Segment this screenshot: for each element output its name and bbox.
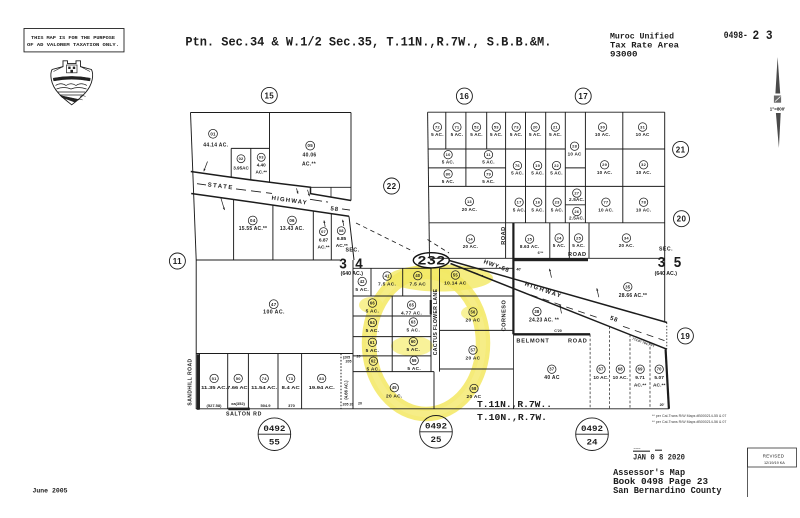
- svg-text:(640 AC.): (640 AC.): [341, 271, 364, 277]
- svg-text:5 AC.: 5 AC.: [553, 243, 566, 248]
- svg-text:BELMONT: BELMONT: [516, 338, 549, 344]
- svg-text:T.10N.,R.7W.: T.10N.,R.7W.: [477, 413, 547, 423]
- svg-text:CACTUS FLOWER LANE: CACTUS FLOWER LANE: [433, 289, 439, 356]
- svg-text:0498-: 0498-: [724, 30, 748, 41]
- svg-text:2.5AC.: 2.5AC.: [569, 216, 585, 221]
- svg-text:07: 07: [321, 229, 326, 234]
- svg-text:47: 47: [271, 302, 277, 307]
- svg-text:26: 26: [574, 209, 579, 214]
- svg-text:THIS MAP IS FOR THE PURPOSE: THIS MAP IS FOR THE PURPOSE: [31, 35, 115, 41]
- svg-text:AC.**: AC.**: [255, 169, 267, 174]
- svg-text:41: 41: [385, 273, 390, 278]
- svg-text:SEC.: SEC.: [659, 246, 673, 252]
- svg-text:3.95AC: 3.95AC: [233, 166, 249, 171]
- svg-text:10 AC.: 10 AC.: [636, 170, 651, 175]
- svg-text:370: 370: [288, 403, 295, 408]
- svg-text:June 2005: June 2005: [33, 487, 68, 494]
- svg-text:(527.58): (527.58): [207, 403, 223, 408]
- svg-text:10 AC.: 10 AC.: [595, 132, 610, 137]
- svg-text:2 3: 2 3: [753, 29, 773, 43]
- svg-text:205: 205: [346, 360, 352, 364]
- svg-text:2.5AC.: 2.5AC.: [569, 197, 585, 202]
- svg-text:71: 71: [454, 124, 459, 129]
- svg-text:40': 40': [516, 268, 521, 272]
- svg-text:37: 37: [549, 367, 555, 372]
- svg-text:Ptn. Sec.34 & W.1/2 Sec.35, T.: Ptn. Sec.34 & W.1/2 Sec.35, T.11N.,R.7W.…: [185, 35, 551, 50]
- svg-text:10 AC.: 10 AC.: [597, 170, 612, 175]
- svg-text:5 AC.: 5 AC.: [511, 171, 524, 176]
- svg-text:10 AC: 10 AC: [568, 151, 582, 156]
- svg-text:31: 31: [640, 124, 645, 129]
- svg-text:San Bernardino County: San Bernardino County: [613, 486, 722, 496]
- svg-text:70: 70: [657, 367, 663, 372]
- svg-text:11: 11: [173, 257, 182, 266]
- svg-text:61: 61: [370, 340, 375, 345]
- svg-text:T.11N.,R.7W..: T.11N.,R.7W..: [477, 400, 552, 410]
- svg-text:5 AC.: 5 AC.: [366, 328, 380, 334]
- svg-text:~~~: ~~~: [633, 446, 641, 451]
- svg-text:20': 20': [660, 403, 665, 407]
- svg-text:66: 66: [370, 300, 375, 305]
- svg-text:40.06: 40.06: [302, 153, 316, 159]
- svg-text:15.55 AC.**: 15.55 AC.**: [239, 226, 267, 232]
- svg-text:ROAD: ROAD: [568, 338, 588, 344]
- svg-text:59: 59: [412, 358, 417, 363]
- svg-text:AC.**: AC.**: [653, 382, 666, 388]
- svg-text:22: 22: [387, 182, 397, 191]
- svg-text:SALTON RD: SALTON RD: [226, 412, 262, 418]
- svg-text:24: 24: [557, 235, 562, 240]
- svg-text:1"=800': 1"=800': [770, 107, 785, 112]
- svg-text:5 AC.: 5 AC.: [431, 132, 444, 137]
- svg-text:6.87: 6.87: [319, 238, 329, 244]
- svg-text:19.94 AC.: 19.94 AC.: [309, 385, 335, 390]
- svg-text:32: 32: [641, 162, 646, 167]
- svg-text:7.66 AC.: 7.66 AC.: [227, 385, 249, 390]
- svg-text:13: 13: [467, 199, 472, 204]
- svg-text:13.43 AC.: 13.43 AC.: [280, 226, 305, 232]
- svg-text:(640 AC.): (640 AC.): [655, 271, 678, 277]
- svg-text:20 AC.: 20 AC.: [463, 244, 478, 249]
- svg-text:xa(352): xa(352): [231, 401, 245, 406]
- svg-text:25: 25: [576, 235, 581, 240]
- svg-text:52: 52: [474, 124, 479, 129]
- svg-text:55: 55: [269, 439, 280, 448]
- svg-text:01: 01: [210, 131, 216, 136]
- svg-text:5 AC.: 5 AC.: [549, 132, 562, 137]
- svg-text:55: 55: [453, 272, 458, 277]
- svg-text:JAN 0 8 2020: JAN 0 8 2020: [633, 452, 685, 462]
- svg-text:5 AC.: 5 AC.: [490, 132, 503, 137]
- svg-text:0492: 0492: [425, 423, 447, 432]
- svg-text:08: 08: [339, 228, 344, 233]
- svg-text:OF AD VALOREM TAXATION ONLY.: OF AD VALOREM TAXATION ONLY.: [27, 42, 119, 48]
- svg-text:25: 25: [431, 436, 442, 445]
- svg-text:67: 67: [598, 367, 604, 372]
- svg-text:56: 56: [471, 309, 476, 314]
- svg-text:74: 74: [262, 376, 267, 381]
- svg-text:** per Cal-Trans R/W Maps #B00: ** per Cal-Trans R/W Maps #B000214-55 & …: [652, 414, 726, 418]
- svg-text:21: 21: [553, 124, 558, 129]
- svg-text:60: 60: [411, 339, 416, 344]
- svg-text:78: 78: [641, 200, 646, 205]
- svg-text:5 AC.: 5 AC.: [550, 171, 563, 176]
- svg-text:7.5 AC: 7.5 AC: [410, 282, 427, 288]
- svg-text:40: 40: [415, 273, 420, 278]
- svg-text:SEC.: SEC.: [345, 247, 359, 253]
- svg-text:79: 79: [486, 171, 491, 176]
- svg-text:0492: 0492: [581, 425, 603, 434]
- svg-text:504.9: 504.9: [260, 403, 271, 408]
- svg-text:80: 80: [446, 171, 451, 176]
- svg-text:4.77 AC.: 4.77 AC.: [401, 311, 422, 317]
- svg-text:57: 57: [471, 347, 476, 352]
- svg-text:C'20: C'20: [554, 329, 561, 333]
- svg-text:5.07: 5.07: [654, 375, 664, 381]
- svg-text:69: 69: [638, 367, 644, 372]
- svg-text:45: 45: [392, 385, 397, 390]
- svg-text:10 AC.: 10 AC.: [613, 375, 628, 381]
- svg-text:(4.66 AC.): (4.66 AC.): [344, 380, 349, 400]
- svg-text:20 AC: 20 AC: [466, 356, 481, 362]
- svg-text:16: 16: [535, 200, 540, 205]
- svg-text:20: 20: [357, 355, 361, 359]
- svg-text:5 AC.: 5 AC.: [442, 160, 455, 165]
- svg-text:ROAD: ROAD: [568, 252, 586, 258]
- svg-text:05: 05: [308, 143, 314, 148]
- svg-text:ROAD: ROAD: [501, 226, 507, 244]
- svg-text:4.40: 4.40: [257, 163, 266, 168]
- svg-text:53: 53: [494, 124, 499, 129]
- svg-text:5 AC.: 5 AC.: [355, 287, 369, 293]
- svg-text:5 AC.: 5 AC.: [366, 348, 380, 354]
- svg-text:5 AC.: 5 AC.: [407, 328, 421, 334]
- svg-text:50: 50: [236, 376, 241, 381]
- svg-text:5 AC.: 5 AC.: [529, 132, 542, 137]
- svg-text:63: 63: [411, 319, 416, 324]
- svg-text:SANDHILL ROAD: SANDHILL ROAD: [188, 358, 194, 405]
- svg-text:5 AC.: 5 AC.: [551, 207, 564, 212]
- svg-text:3 5: 3 5: [658, 255, 682, 272]
- svg-text:12/19/19 KA: 12/19/19 KA: [764, 461, 785, 465]
- svg-text:5 AC.: 5 AC.: [442, 179, 455, 184]
- svg-text:44.14 AC.: 44.14 AC.: [203, 143, 228, 149]
- svg-text:5 AC.: 5 AC.: [513, 207, 526, 212]
- svg-text:205 20: 205 20: [343, 403, 354, 407]
- svg-text:22: 22: [554, 163, 559, 168]
- svg-text:5 AC.: 5 AC.: [407, 347, 421, 353]
- svg-text:773.87 784.7 FT: 773.87 784.7 FT: [632, 337, 655, 349]
- svg-text:20 AC: 20 AC: [466, 318, 481, 324]
- svg-text:8.63 AC.: 8.63 AC.: [520, 244, 540, 249]
- svg-text:0492: 0492: [263, 425, 285, 434]
- svg-text:30: 30: [600, 124, 605, 129]
- svg-text:34: 34: [624, 235, 629, 240]
- svg-text:23: 23: [555, 200, 560, 205]
- svg-text:19: 19: [681, 332, 691, 341]
- svg-text:5 AC.: 5 AC.: [531, 207, 544, 212]
- svg-text:5 AC.: 5 AC.: [407, 366, 421, 372]
- svg-text:17: 17: [578, 92, 588, 101]
- svg-text:10 AC.: 10 AC.: [636, 207, 651, 212]
- svg-text:STATE: STATE: [207, 182, 234, 191]
- svg-text:10 AC.: 10 AC.: [598, 207, 613, 212]
- svg-text:10 AC.: 10 AC.: [593, 375, 608, 381]
- svg-text:5 AC.: 5 AC.: [510, 132, 523, 137]
- svg-text:68: 68: [618, 367, 624, 372]
- svg-text:20: 20: [677, 215, 687, 224]
- svg-text:16: 16: [460, 92, 470, 101]
- svg-text:58: 58: [609, 316, 619, 324]
- svg-text:02: 02: [239, 156, 244, 161]
- svg-text:AC.**: AC.**: [302, 162, 316, 168]
- svg-text:10: 10: [446, 152, 451, 157]
- svg-text:29: 29: [602, 162, 607, 167]
- svg-text:65: 65: [409, 302, 414, 307]
- svg-text:232: 232: [417, 255, 445, 269]
- svg-text:100 AC.: 100 AC.: [263, 310, 285, 316]
- svg-text:51: 51: [212, 376, 217, 381]
- svg-text:9.71: 9.71: [635, 375, 645, 381]
- svg-text:20: 20: [533, 124, 538, 129]
- svg-text:20 AC: 20 AC: [467, 394, 482, 400]
- svg-text:6'**: 6'**: [538, 251, 544, 255]
- svg-text:AC.**: AC.**: [318, 245, 330, 251]
- svg-text:19: 19: [535, 163, 540, 168]
- svg-text:CORNESO: CORNESO: [502, 299, 508, 331]
- svg-text:5 AC.: 5 AC.: [572, 243, 585, 248]
- svg-text:11.35 AC.: 11.35 AC.: [201, 385, 227, 390]
- svg-text:5 AC.: 5 AC.: [482, 179, 495, 184]
- svg-text:5 AC.: 5 AC.: [531, 171, 544, 176]
- svg-text:10 AC: 10 AC: [636, 132, 650, 137]
- svg-text:38: 38: [534, 309, 540, 314]
- svg-text:REVISED: REVISED: [763, 453, 784, 458]
- svg-text:15: 15: [264, 91, 274, 100]
- svg-text:20 AC.: 20 AC.: [619, 243, 634, 248]
- svg-text:93000: 93000: [610, 49, 638, 59]
- svg-text:06: 06: [289, 218, 295, 223]
- svg-text:15: 15: [527, 236, 532, 241]
- svg-text:21: 21: [676, 145, 686, 154]
- svg-text:77: 77: [603, 200, 608, 205]
- svg-text:28.66 AC.**: 28.66 AC.**: [619, 293, 647, 299]
- svg-text:04: 04: [250, 218, 256, 223]
- svg-text:11: 11: [486, 152, 491, 157]
- svg-text:5 AC.: 5 AC.: [470, 132, 483, 137]
- svg-text:42: 42: [360, 279, 365, 284]
- svg-text:58: 58: [472, 386, 477, 391]
- svg-text:83: 83: [319, 376, 324, 381]
- svg-text:5 AC.: 5 AC.: [482, 160, 495, 165]
- svg-text:11.54 AC.: 11.54 AC.: [251, 385, 277, 390]
- svg-text:24: 24: [587, 439, 598, 448]
- svg-text:27: 27: [574, 191, 579, 196]
- svg-text:72: 72: [435, 124, 440, 129]
- svg-text:20 AC.: 20 AC.: [462, 207, 477, 212]
- svg-text:8.4 AC: 8.4 AC: [282, 385, 301, 390]
- svg-text:28: 28: [572, 144, 577, 149]
- svg-text:20: 20: [358, 402, 362, 406]
- svg-text:35: 35: [625, 284, 631, 289]
- svg-text:73: 73: [514, 124, 519, 129]
- svg-text:24.23 AC. **: 24.23 AC. **: [529, 318, 559, 324]
- svg-text:73: 73: [288, 376, 293, 381]
- svg-text:03: 03: [259, 155, 264, 160]
- svg-text:17: 17: [517, 200, 522, 205]
- svg-text:14: 14: [468, 236, 473, 241]
- svg-text:20 AC.: 20 AC.: [386, 394, 403, 400]
- svg-text:58: 58: [330, 206, 339, 213]
- svg-text:6.85: 6.85: [337, 236, 347, 242]
- svg-text:5 AC.: 5 AC.: [451, 132, 464, 137]
- svg-text:62: 62: [371, 359, 376, 364]
- svg-text:5 AC.: 5 AC.: [367, 367, 381, 373]
- svg-text:10.14 AC: 10.14 AC: [444, 281, 467, 287]
- svg-text:64: 64: [370, 320, 375, 325]
- svg-text:5 AC.: 5 AC.: [366, 309, 380, 315]
- svg-text:76: 76: [515, 163, 520, 168]
- svg-text:AC.**: AC.**: [634, 382, 647, 388]
- svg-text:40 AC: 40 AC: [544, 375, 560, 381]
- svg-text:7.5 AC.: 7.5 AC.: [378, 282, 396, 288]
- svg-text:** per Cal-Trans R/W Maps #B00: ** per Cal-Trans R/W Maps #B000214-56 & …: [652, 420, 726, 424]
